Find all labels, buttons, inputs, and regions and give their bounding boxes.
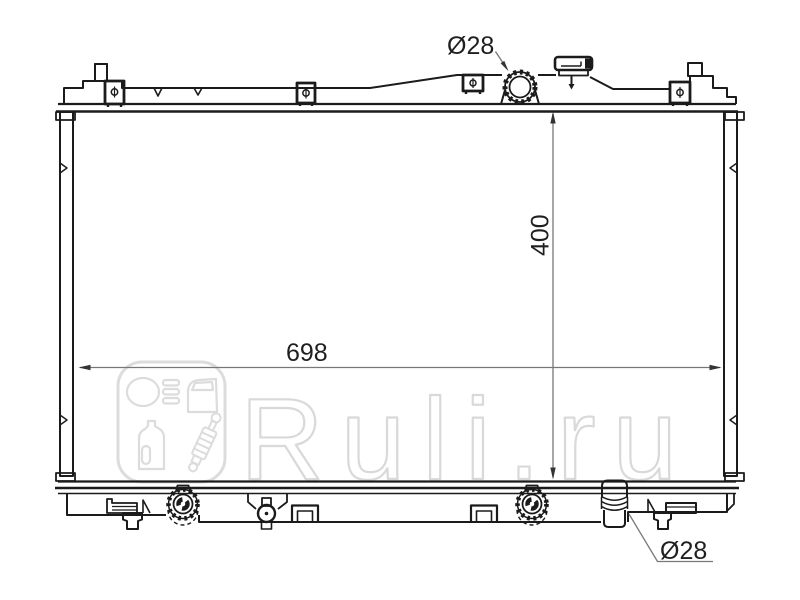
- mounting-pin-left: [95, 64, 107, 81]
- radiator-technical-drawing: Ruli.ru: [0, 0, 800, 600]
- dimension-filler-neck: Ø28: [447, 32, 509, 71]
- filler-neck-diameter-label: Ø28: [447, 32, 494, 60]
- headlight-icon: [127, 378, 179, 406]
- clamp-bracket-2: [471, 506, 497, 524]
- shock-absorber-icon: [185, 411, 224, 474]
- car-door-icon: [188, 379, 217, 412]
- radiator-cap: [555, 57, 592, 90]
- arrow-up-icon: [550, 112, 555, 124]
- mounting-clip-3: [463, 75, 483, 94]
- mounting-clip-2: [297, 83, 315, 106]
- leader-arrow-icon: [501, 61, 509, 71]
- dimension-outlet-pipe: Ø28: [629, 514, 713, 565]
- arrow-left-icon: [79, 365, 91, 370]
- drawing-canvas: Ruli.ru: [0, 0, 800, 600]
- clamp-bracket-1: [292, 506, 318, 524]
- mounting-pin-right: [688, 63, 702, 76]
- filler-neck: [501, 72, 539, 104]
- tank-notch: [154, 88, 162, 96]
- right-side-panel: [724, 112, 744, 481]
- watermark: Ruli.ru: [118, 362, 694, 504]
- left-side-panel: [56, 112, 75, 481]
- drain-boss-left: [168, 486, 198, 526]
- oil-canister-icon: [139, 421, 164, 469]
- dimension-core-width: 698: [79, 339, 722, 370]
- top-tank: [64, 63, 736, 104]
- outlet-pipe-diameter-label: Ø28: [660, 537, 707, 565]
- mounting-clip-4: [670, 82, 690, 106]
- arrow-right-icon: [710, 365, 722, 370]
- tank-notch: [194, 88, 202, 95]
- core-width-label: 698: [286, 339, 328, 367]
- top-flange: [56, 104, 744, 120]
- core-height-label: 400: [527, 214, 555, 256]
- mounting-pin: [654, 513, 671, 529]
